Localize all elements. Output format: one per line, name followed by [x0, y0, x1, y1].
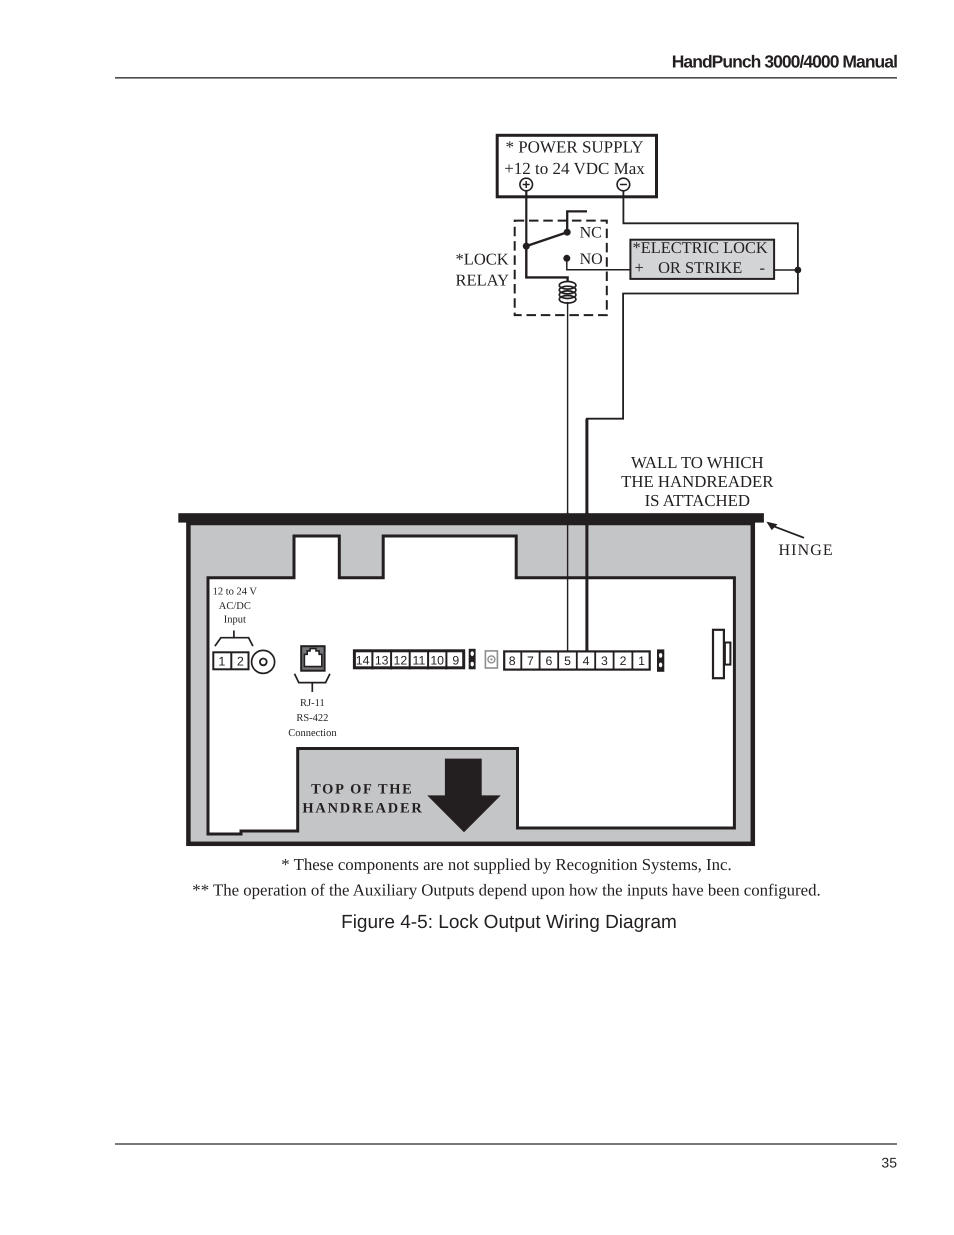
svg-text:HINGE: HINGE	[779, 542, 834, 559]
svg-text:5: 5	[564, 654, 571, 668]
svg-text:+: +	[635, 258, 644, 277]
svg-text:TOP OF THE: TOP OF THE	[311, 781, 413, 797]
svg-text:THE HANDREADER: THE HANDREADER	[621, 472, 774, 491]
svg-text:* These components are not sup: * These components are not supplied by R…	[281, 855, 731, 874]
svg-text:35: 35	[881, 1155, 897, 1171]
svg-text:8: 8	[509, 654, 516, 668]
svg-text:RS-422: RS-422	[296, 713, 328, 724]
svg-text:6: 6	[545, 654, 552, 668]
svg-text:*LOCK: *LOCK	[456, 249, 509, 268]
svg-text:Input: Input	[224, 614, 246, 625]
svg-text:11: 11	[413, 653, 426, 667]
svg-text:3: 3	[601, 654, 608, 668]
svg-text:NO: NO	[580, 251, 603, 268]
svg-text:7: 7	[527, 654, 534, 668]
svg-text:IS ATTACHED: IS ATTACHED	[645, 491, 750, 510]
svg-text:AC/DC: AC/DC	[219, 601, 251, 612]
svg-text:HandPunch 3000/4000 Manual: HandPunch 3000/4000 Manual	[672, 52, 897, 72]
svg-text:WALL TO WHICH: WALL TO WHICH	[631, 453, 764, 472]
svg-text:+12 to 24 VDC Max: +12 to 24 VDC Max	[504, 159, 645, 178]
svg-text:Connection: Connection	[288, 728, 337, 739]
svg-text:RJ-11: RJ-11	[300, 698, 325, 709]
svg-text:4: 4	[583, 654, 590, 668]
svg-text:** The operation of the Auxili: ** The operation of the Auxiliary Output…	[192, 880, 820, 899]
svg-text:1: 1	[218, 654, 225, 668]
svg-text:NC: NC	[580, 225, 602, 242]
svg-text:Figure 4-5: Lock Output Wiring: Figure 4-5: Lock Output Wiring Diagram	[341, 912, 677, 933]
svg-text:10: 10	[430, 653, 444, 667]
svg-text:13: 13	[375, 653, 389, 667]
svg-text:1: 1	[638, 654, 645, 668]
svg-text:9: 9	[452, 653, 459, 667]
svg-text:RELAY: RELAY	[456, 271, 510, 290]
svg-text:*ELECTRIC LOCK: *ELECTRIC LOCK	[633, 238, 768, 257]
svg-text:* POWER SUPPLY: * POWER SUPPLY	[505, 137, 643, 156]
svg-text:OR STRIKE: OR STRIKE	[658, 258, 742, 277]
svg-text:14: 14	[356, 653, 370, 667]
svg-text:-: -	[760, 258, 765, 277]
svg-text:2: 2	[620, 654, 627, 668]
svg-text:2: 2	[237, 654, 244, 668]
svg-text:12: 12	[394, 653, 408, 667]
svg-text:HANDREADER: HANDREADER	[302, 801, 423, 817]
svg-text:12 to 24 V: 12 to 24 V	[213, 587, 258, 598]
